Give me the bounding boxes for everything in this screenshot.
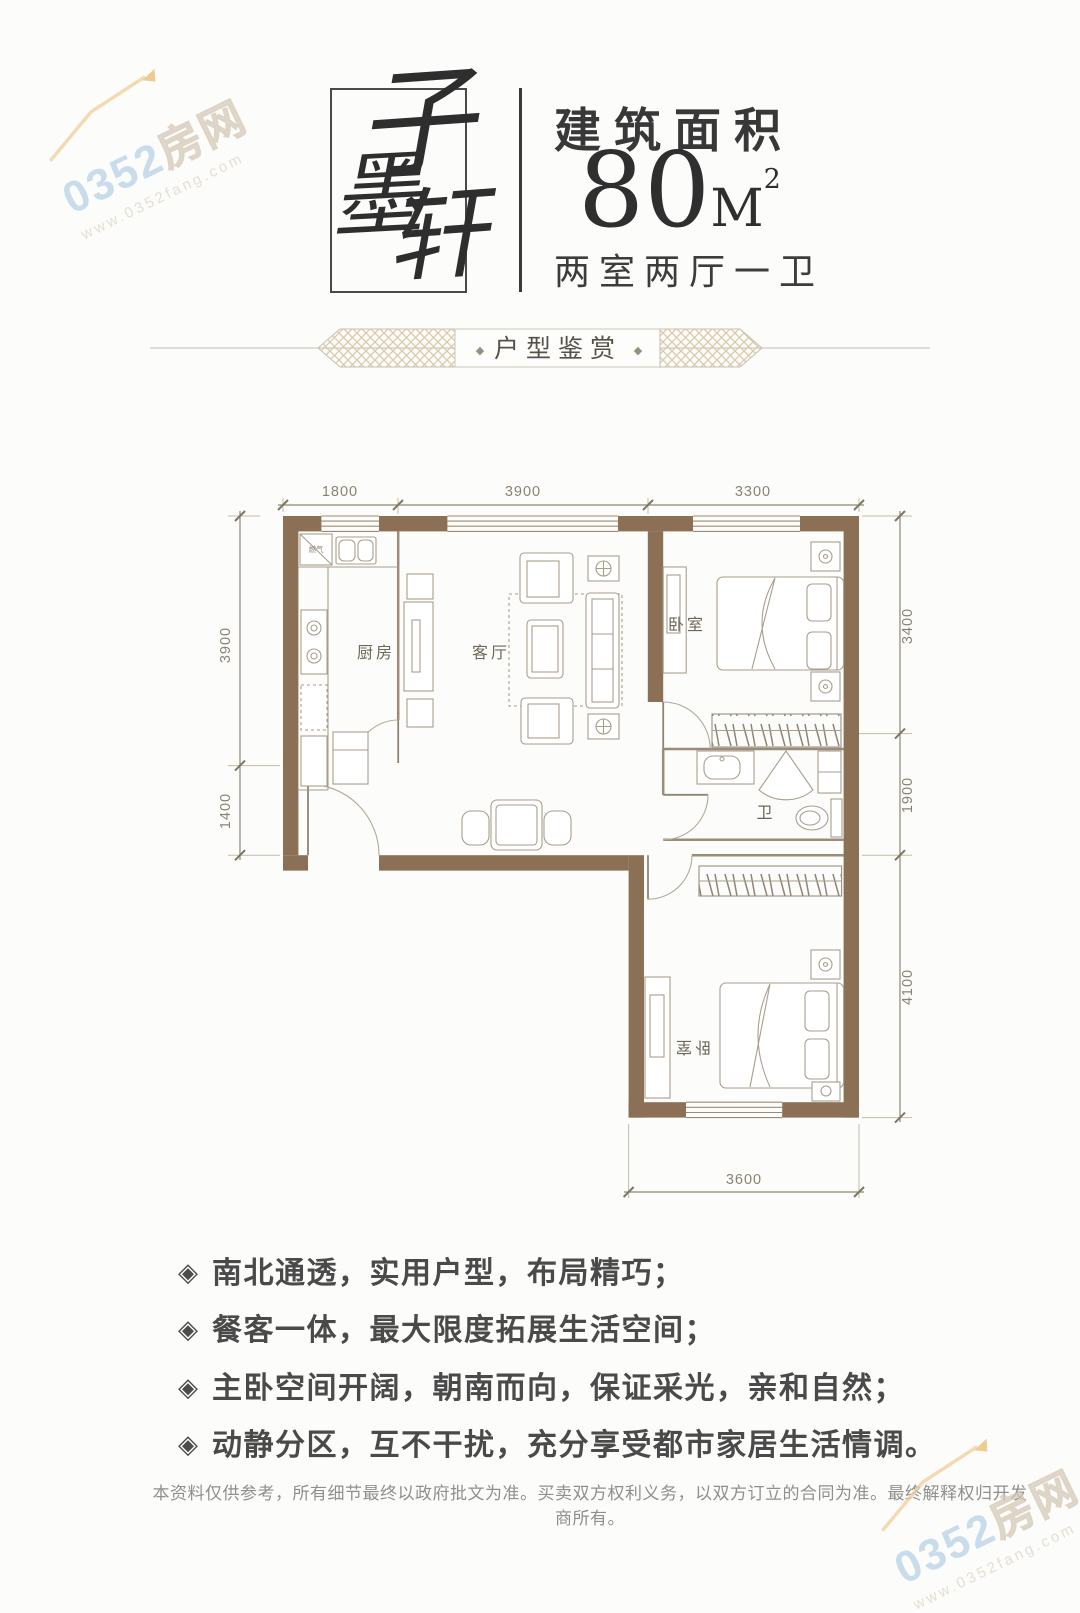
bathroom-door (663, 795, 708, 840)
bathroom-vanity (697, 751, 754, 784)
toilet (796, 799, 842, 837)
dim-left-2: 1400 (218, 793, 234, 829)
tv-console (404, 574, 433, 727)
bedroom2-closet (699, 866, 842, 896)
side-table-bottom (588, 714, 619, 739)
area-superscript: 2 (764, 164, 781, 195)
section-banner: ◆ 户型鉴赏 ◆ (150, 324, 930, 372)
bathroom-cabinet (818, 751, 841, 793)
bathroom-label: 卫 (756, 805, 775, 822)
dim-top-1: 1800 (322, 484, 358, 500)
diamond-bullet-icon: ◈ (178, 1257, 198, 1288)
armchair-bottom (521, 698, 573, 744)
dining-table (491, 800, 542, 850)
banner-dot-left-icon: ◆ (476, 345, 485, 357)
side-table-top (588, 556, 619, 581)
bedroom1-nightstand-top (811, 542, 840, 571)
entry-door (308, 784, 379, 855)
kitchen-cabinet-dashed (301, 685, 327, 730)
watermark-suffix: 房网 (150, 93, 254, 177)
feature-text-2: 餐客一体，最大限度拓展生活空间； (212, 1314, 716, 1347)
feature-item-4: ◈动静分区，互不干扰，充分享受都市家居生活情调。 (178, 1420, 937, 1456)
living-room-label: 客厅 (472, 644, 510, 662)
shower (759, 751, 813, 800)
kitchen-label: 厨房 (357, 644, 395, 662)
kitchen-window (321, 516, 379, 531)
stove (301, 610, 327, 674)
bedroom1-bed (717, 577, 844, 670)
diamond-bullet-icon: ◈ (178, 1372, 198, 1403)
diamond-bullet-icon: ◈ (178, 1429, 198, 1460)
banner-ribbon-left (318, 329, 455, 367)
banner-title: 户型鉴赏 (494, 335, 622, 363)
bedroom2-wardrobe (645, 977, 670, 1098)
diamond-bullet-icon: ◈ (178, 1314, 198, 1345)
dim-right-3: 4100 (900, 969, 916, 1005)
gas-label: 燃气 (309, 544, 324, 554)
bedroom1-nightstand-bottom (811, 672, 840, 701)
feature-item-3: ◈主卧空间开阔，朝南而向，保证采光，亲和自然； (178, 1363, 905, 1399)
area-size: 80M2 (578, 138, 781, 242)
bedroom1-closet (712, 714, 841, 747)
feature-text-3: 主卧空间开阔，朝南而向，保证采光，亲和自然； (212, 1372, 905, 1405)
banner-ribbon-right (660, 329, 762, 367)
sofa (586, 593, 619, 708)
feature-text-4: 动静分区，互不干扰，充分享受都市家居生活情调。 (212, 1429, 937, 1462)
watermark-top-left: 0352房网 www.0352fang.com (30, 41, 266, 244)
dim-top-2: 3900 (505, 484, 541, 500)
dim-top-3: 3300 (735, 484, 771, 500)
dim-bottom-1: 3600 (726, 1172, 762, 1188)
feature-text-1: 南北通透，实用户型，布局精巧； (212, 1257, 685, 1290)
watermark-brand: 0352房网 (50, 81, 258, 226)
logo-char-xuan: 轩 (383, 183, 490, 290)
dim-left-1: 3900 (218, 627, 234, 663)
area-value: 80 (578, 129, 710, 251)
banner-dot-right-icon: ◆ (634, 345, 643, 357)
watermark-url: www.0352fang.com (79, 140, 266, 243)
kitchen-cabinet (301, 736, 327, 786)
living-room-window (447, 516, 618, 531)
dim-right-2: 1900 (900, 777, 916, 813)
header-divider (519, 88, 522, 292)
feature-item-1: ◈南北通透，实用户型，布局精巧； (178, 1248, 685, 1284)
bedroom2-nightstand-top (811, 950, 840, 979)
armchair-top (520, 553, 573, 603)
dining-chair-left (462, 811, 489, 845)
bedroom1-label: 卧室 (668, 616, 706, 634)
bedroom1-door (663, 702, 710, 749)
area-unit: M (710, 179, 763, 239)
watermark-roof-icon (30, 41, 227, 165)
dining-chair-right (544, 811, 571, 845)
dim-right-1: 3400 (900, 608, 916, 644)
feature-item-2: ◈餐客一体，最大限度拓展生活空间； (178, 1305, 716, 1341)
bedroom2-label: 卧室 (673, 1038, 711, 1056)
bedroom2-window (686, 1102, 782, 1117)
bedroom2-door (648, 855, 692, 899)
disclaimer-text: 本资料仅供参考，所有细节最终以政府批文为准。买卖双方权利义务，以双方订立的合同为… (150, 1479, 1030, 1529)
bedroom1-window (693, 516, 800, 531)
fridge (333, 732, 368, 784)
bedroom2-bed (720, 983, 844, 1088)
bedroom2-nightstand-bottom (812, 1082, 840, 1101)
floorplan-drawing: 1800 3900 3300 3900 1400 3400 1900 4100 … (200, 450, 1000, 1220)
flyer-page: { "watermark": { "brand_number": "0352",… (0, 0, 1080, 1574)
watermark-number: 0352 (55, 133, 172, 223)
kitchen-sink (336, 537, 376, 564)
coffee-table (527, 620, 563, 678)
room-count-text: 两室两厅一卫 (554, 243, 824, 295)
